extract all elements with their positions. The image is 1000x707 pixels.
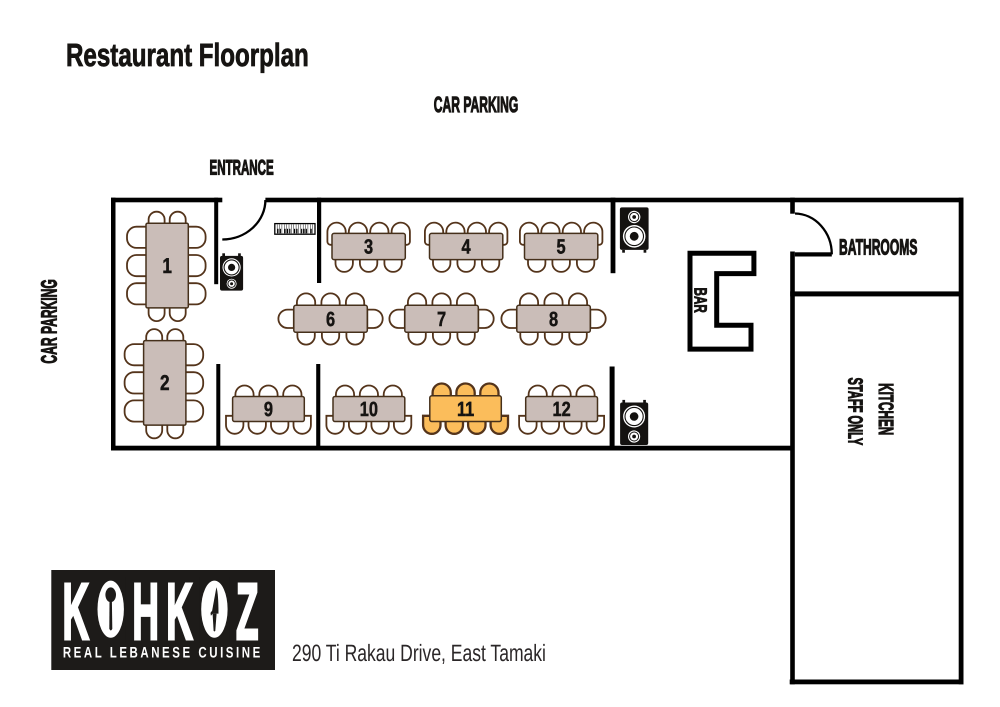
svg-text:CAR PARKING: CAR PARKING (434, 92, 518, 117)
svg-text:4: 4 (462, 236, 472, 259)
svg-text:290 Ti Rakau Drive, East Tamak: 290 Ti Rakau Drive, East Tamaki (292, 641, 546, 667)
svg-text:6: 6 (326, 308, 335, 331)
svg-text:KOHKOZ: KOHKOZ (63, 567, 266, 656)
svg-text:9: 9 (264, 398, 273, 421)
svg-text:BATHROOMS: BATHROOMS (839, 234, 917, 259)
svg-text:10: 10 (360, 398, 378, 421)
svg-text:ENTRANCE: ENTRANCE (210, 157, 274, 180)
svg-text:Restaurant Floorplan: Restaurant Floorplan (66, 37, 309, 73)
svg-text:CAR PARKING: CAR PARKING (37, 279, 62, 363)
svg-text:1: 1 (162, 254, 172, 278)
svg-text:BAR: BAR (691, 288, 711, 313)
svg-text:3: 3 (364, 236, 373, 259)
svg-text:STAFF ONLY: STAFF ONLY (844, 377, 866, 445)
svg-text:KITCHEN: KITCHEN (874, 383, 897, 435)
svg-text:12: 12 (552, 398, 570, 421)
svg-text:REAL LEBANESE CUISINE: REAL LEBANESE CUISINE (63, 645, 263, 662)
svg-text:11: 11 (457, 398, 474, 421)
svg-text:7: 7 (437, 308, 446, 331)
svg-text:5: 5 (557, 236, 566, 259)
svg-text:2: 2 (160, 371, 170, 395)
svg-text:8: 8 (549, 308, 558, 331)
